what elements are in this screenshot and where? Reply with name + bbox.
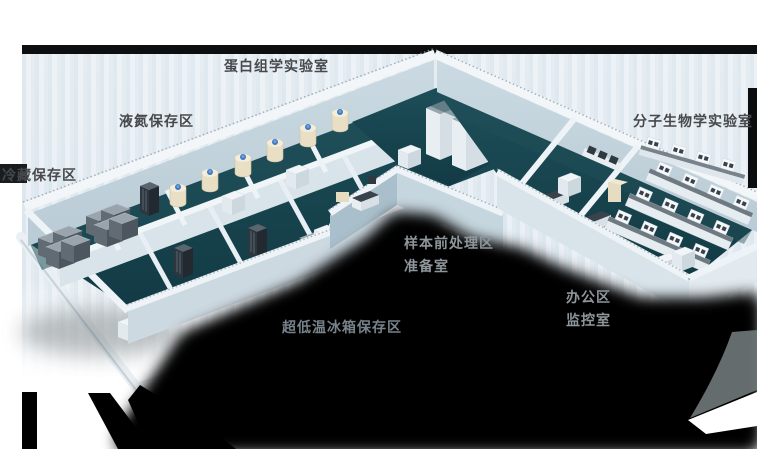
label-monitoring-room: 监控室 (566, 310, 611, 330)
label-cold-storage: 冷藏保存区 (2, 165, 77, 185)
label-sample-pretreatment: 样本前处理区 (404, 233, 494, 253)
right-edge-strip (748, 88, 757, 188)
lab-floorplan-scene: 蛋白组学实验室 液氮保存区 冷藏保存区 分子生物学实验室 样本前处理区 准备室 … (0, 0, 757, 449)
label-preparation-room: 准备室 (404, 256, 449, 276)
top-black-bar (22, 45, 757, 54)
label-molecular-biology-lab: 分子生物学实验室 (633, 111, 753, 131)
label-ult-freezer-storage: 超低温冰箱保存区 (282, 317, 402, 337)
label-office-area: 办公区 (566, 287, 611, 307)
label-liquid-nitrogen: 液氮保存区 (119, 111, 194, 131)
label-proteomics-lab: 蛋白组学实验室 (224, 56, 329, 76)
building-render (0, 0, 757, 449)
